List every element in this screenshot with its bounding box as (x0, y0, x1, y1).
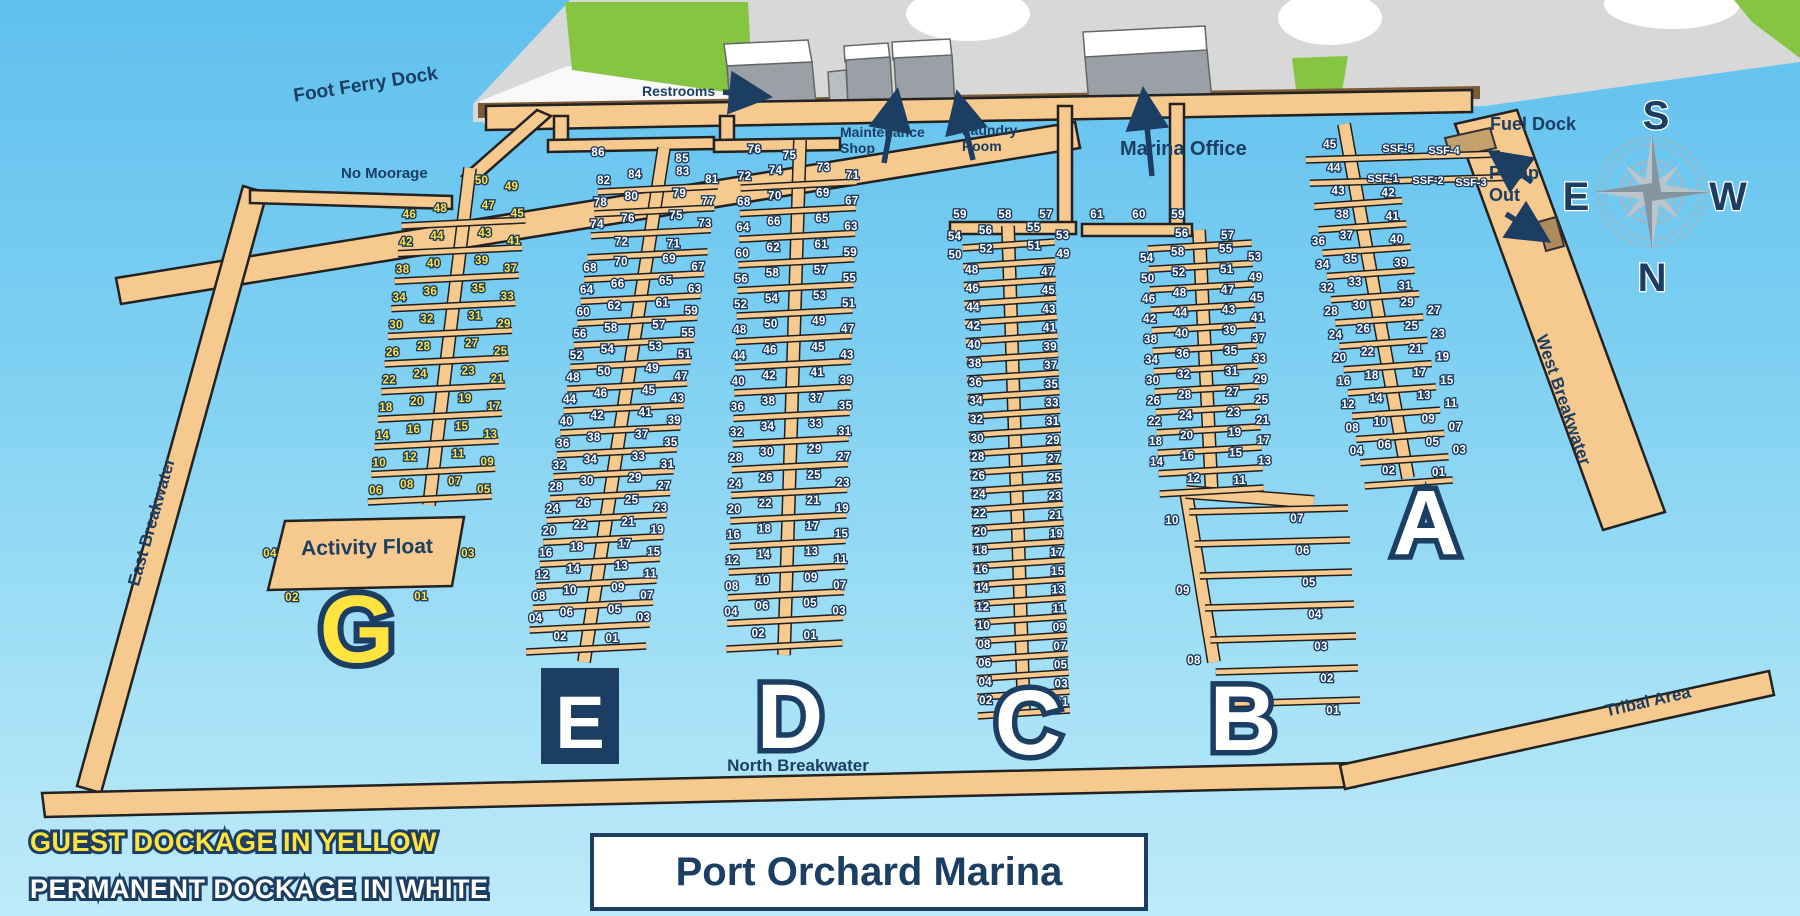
slip-number: 21 (1409, 344, 1423, 356)
dock-structure (553, 471, 673, 477)
dock-letter-a: A (1393, 472, 1459, 574)
slip-number: 71 (667, 239, 681, 251)
slip-number: 35 (839, 401, 853, 413)
slip-number: 21 (1256, 415, 1270, 427)
slip-number: 86 (591, 147, 604, 159)
slip-number: 48 (733, 325, 747, 337)
slip-number: 17 (806, 521, 819, 533)
slip-number: 05 (1426, 437, 1440, 449)
slip-number: 11 (1233, 475, 1246, 487)
dock-structure (381, 386, 505, 392)
slip-number: 19 (836, 503, 849, 515)
slip-number: 05 (477, 484, 491, 496)
slip-number: 21 (807, 495, 821, 507)
slip-number: 14 (975, 583, 989, 595)
slip-number: 04 (1308, 609, 1322, 621)
maintenance-shop-label: Maintenance Shop (840, 124, 940, 156)
dock-structure (737, 310, 853, 316)
slip-number: 13 (1051, 585, 1064, 597)
slip-number: 24 (546, 504, 560, 516)
slip-number: 38 (762, 396, 776, 408)
slip-number: 41 (639, 407, 653, 419)
no-moorage-dock (250, 190, 452, 209)
slip-number: 32 (970, 414, 983, 426)
slip-number: 44 (1174, 308, 1188, 320)
no-moorage-label: No Moorage (341, 165, 428, 182)
compass-north: N (1638, 256, 1667, 300)
slip-number: 05 (608, 604, 622, 616)
slip-number: 44 (1327, 162, 1341, 174)
slip-number: 37 (1252, 333, 1265, 345)
slip-number: 51 (678, 349, 692, 361)
slip-number: 34 (1145, 355, 1159, 367)
dock-structure (577, 317, 697, 323)
slip-number: 60 (1132, 209, 1145, 221)
slip-number: 61 (656, 297, 670, 309)
dock-structure (1155, 386, 1259, 392)
slip-number: 47 (674, 371, 687, 383)
slip-number: 65 (659, 276, 673, 288)
slip-number: 25 (494, 346, 508, 358)
slip-number: SSF-4 (1428, 145, 1460, 157)
slip-number: 49 (1249, 272, 1262, 284)
slip-number: 28 (729, 453, 743, 465)
slip-number: 06 (1378, 440, 1391, 452)
slip-number: 49 (645, 363, 658, 375)
slip-number: 02 (752, 628, 765, 640)
slip-number: 03 (1314, 641, 1327, 653)
slip-number: 23 (654, 503, 667, 515)
dock-structure (740, 208, 856, 214)
slip-number: 28 (971, 452, 985, 464)
slip-number: 76 (621, 213, 634, 225)
slip-number: 24 (728, 478, 742, 490)
slip-number: 07 (1290, 513, 1303, 525)
slip-number: 21 (1049, 510, 1063, 522)
marina-map: SSF-5SSF-4SSF-1SSF-2SSF-3040302015049464… (0, 0, 1800, 916)
slip-number: 12 (1341, 399, 1354, 411)
slip-number: 40 (1175, 328, 1188, 340)
dock-structure (540, 558, 660, 564)
slip-number: 18 (570, 541, 584, 553)
compass-south: S (1643, 94, 1670, 138)
slip-number: 10 (756, 575, 769, 587)
slip-number: 48 (566, 372, 580, 384)
slip-number: 12 (726, 555, 739, 567)
slip-number: 53 (813, 290, 826, 302)
restrooms-building (724, 40, 816, 107)
slip-number: 19 (458, 393, 471, 405)
slip-number: 07 (833, 580, 846, 592)
dock-structure (1152, 325, 1256, 331)
slip-number: 33 (501, 291, 514, 303)
slip-number: 04 (1350, 446, 1364, 458)
slip-number: 23 (1227, 407, 1240, 419)
dock-structure (727, 617, 843, 623)
slip-number: 02 (979, 695, 992, 707)
legend-guest: GUEST DOCKAGE IN YELLOW (30, 827, 437, 857)
slip-number: SSF-2 (1412, 175, 1443, 187)
slip-number: 52 (1172, 267, 1185, 279)
slip-number: 13 (805, 546, 818, 558)
slip-number: 69 (662, 254, 675, 266)
restrooms-label: Restrooms (642, 83, 715, 99)
slip-number: 57 (652, 319, 665, 331)
slip-number: 31 (1046, 416, 1060, 428)
dock-structure (560, 427, 680, 433)
slip-number: 29 (808, 444, 821, 456)
dock-structure (1323, 247, 1411, 253)
slip-number: 26 (386, 347, 399, 359)
slip-number: 25 (1255, 394, 1269, 406)
north-breakwater-label: North Breakwater (727, 756, 869, 776)
slip-number: 29 (628, 473, 641, 485)
slip-number: 46 (1142, 293, 1155, 305)
dock-letter-b: B (1210, 668, 1276, 770)
dock-structure (533, 602, 653, 608)
dock-letter-c: C (995, 672, 1061, 774)
slip-number: 24 (972, 489, 986, 501)
slip-number: 37 (1044, 360, 1057, 372)
slip-number: 45 (642, 385, 656, 397)
slip-number: 56 (573, 328, 586, 340)
slip-number: 07 (1053, 641, 1066, 653)
slip-number: 02 (285, 592, 298, 604)
slip-number: 09 (1053, 622, 1066, 634)
dock-structure (385, 358, 509, 364)
slip-number: 08 (977, 639, 991, 651)
slip-number: 15 (1229, 448, 1243, 460)
grass (1292, 56, 1348, 92)
slip-number: 83 (676, 166, 689, 178)
dock-letter-d: D (757, 666, 823, 768)
laundry-room-building (892, 39, 955, 106)
slip-number: 22 (574, 519, 587, 531)
slip-number: 64 (736, 222, 750, 234)
slip-number: 06 (369, 485, 382, 497)
dock-structure (733, 413, 849, 419)
slip-number: 28 (417, 341, 431, 353)
slip-number: 12 (976, 601, 989, 613)
slip-number: 34 (584, 454, 598, 466)
slip-number: 53 (1248, 251, 1261, 263)
dock-structure (730, 515, 846, 521)
dock-structure (388, 330, 512, 336)
slip-number: 23 (1048, 491, 1061, 503)
slip-number: 17 (1050, 547, 1063, 559)
dock-structure (1157, 427, 1261, 433)
dock-structure (1150, 284, 1254, 290)
slip-number: 06 (755, 600, 768, 612)
slip-number: 05 (1054, 660, 1068, 672)
slip-number: 32 (730, 427, 743, 439)
slip-number: 20 (410, 396, 423, 408)
slip-number: 36 (1312, 236, 1325, 248)
slip-number: 41 (1043, 323, 1057, 335)
slip-number: 09 (611, 582, 624, 594)
dock-structure (395, 275, 519, 281)
slip-number: 32 (553, 460, 566, 472)
slip-number: 35 (1045, 379, 1059, 391)
slip-number: 26 (1357, 323, 1370, 335)
slip-number: 54 (948, 231, 962, 243)
dock-structure (567, 383, 687, 389)
slip-number: 30 (580, 476, 593, 488)
slip-number: 36 (731, 402, 744, 414)
slip-number: 22 (1148, 416, 1161, 428)
slip-number: 27 (1047, 454, 1060, 466)
slip-number: 32 (1177, 369, 1190, 381)
slip-number: 35 (1224, 346, 1238, 358)
slip-number: 52 (570, 350, 583, 362)
compass-west: W (1709, 175, 1747, 219)
slip-number: 84 (628, 169, 642, 181)
slip-number: 18 (1149, 436, 1163, 448)
slip-number: 31 (1225, 366, 1239, 378)
slip-number: 10 (1165, 515, 1178, 527)
slip-number: 25 (625, 495, 639, 507)
slip-number: 02 (553, 631, 566, 643)
slip-number: 34 (1316, 259, 1330, 271)
slip-number: 60 (736, 248, 749, 260)
slip-number: 72 (738, 171, 751, 183)
dock-structure (1151, 304, 1255, 310)
slip-number: 18 (974, 545, 988, 557)
slip-number: 29 (497, 318, 510, 330)
slip-number: 33 (1045, 397, 1058, 409)
slip-number: 47 (841, 324, 854, 336)
dock-structure (1158, 447, 1262, 453)
slip-number: 45 (511, 208, 525, 220)
slip-number: 14 (1150, 457, 1164, 469)
dock-structure (584, 274, 704, 280)
slip-number: 55 (843, 272, 857, 284)
slip-number: 77 (702, 196, 715, 208)
slip-number: 70 (768, 191, 781, 203)
slip-number: 27 (1226, 386, 1239, 398)
slip-number: 49 (1056, 249, 1069, 261)
slip-number: 46 (403, 209, 416, 221)
dock-structure (739, 233, 855, 239)
slip-number: 04 (979, 676, 993, 688)
dock-letter-e: E (555, 681, 604, 764)
dock-structure (591, 230, 711, 236)
slip-number: 42 (399, 237, 412, 249)
slip-number: 01 (414, 591, 428, 603)
slip-number: 45 (1323, 139, 1337, 151)
slip-number: 10 (373, 457, 386, 469)
compass-rose: S E W N (1563, 94, 1747, 300)
dock-structure (1153, 345, 1257, 351)
slip-number: 28 (1325, 306, 1339, 318)
slip-number: 24 (414, 369, 428, 381)
slip-number: 18 (379, 402, 393, 414)
slip-number: 34 (393, 292, 407, 304)
slip-number: 43 (1332, 186, 1345, 198)
slip-number: 50 (764, 319, 777, 331)
slip-number: 04 (263, 548, 277, 560)
slip-number: 16 (727, 530, 740, 542)
slip-number: 03 (461, 548, 474, 560)
slip-number: 50 (475, 175, 488, 187)
slip-number: 19 (1436, 352, 1449, 364)
slip-number: 13 (1417, 390, 1430, 402)
dock-structure (732, 464, 848, 470)
slip-number: 51 (1027, 241, 1041, 253)
slip-number: 58 (998, 209, 1012, 221)
slip-number: 41 (507, 236, 521, 248)
dock-structure (736, 336, 852, 342)
slip-number: 82 (597, 175, 610, 187)
slip-number: 44 (563, 394, 577, 406)
slip-number: 63 (688, 284, 701, 296)
slip-number: 06 (978, 658, 991, 670)
pump-out-label: Pump Out (1489, 163, 1553, 206)
slip-number: 16 (1181, 451, 1194, 463)
slip-number: 44 (732, 350, 746, 362)
slip-number: 15 (647, 546, 661, 558)
slip-number: 21 (491, 374, 505, 386)
slip-number: 19 (651, 524, 664, 536)
slip-number: 27 (657, 481, 670, 493)
slip-number: 13 (1258, 456, 1271, 468)
slip-number: 21 (622, 516, 636, 528)
slip-number: 73 (817, 162, 830, 174)
slip-number: 37 (504, 263, 517, 275)
slip-number: 20 (1333, 353, 1346, 365)
slip-number: 28 (1178, 389, 1192, 401)
slip-number: 60 (577, 306, 590, 318)
slip-number: 14 (1369, 393, 1383, 405)
slip-number: 31 (468, 310, 482, 322)
slip-number: 48 (1173, 287, 1187, 299)
slip-number: 22 (759, 498, 772, 510)
dock-structure (526, 646, 646, 652)
slip-number: 65 (815, 213, 829, 225)
slip-number: 46 (763, 344, 776, 356)
slip-number: 57 (814, 264, 827, 276)
slip-number: 45 (811, 341, 825, 353)
dock-structure (738, 259, 854, 265)
slip-number: 85 (675, 153, 689, 165)
slip-number: 06 (1296, 545, 1309, 557)
slip-number: 59 (1171, 209, 1184, 221)
slip-number: 20 (974, 527, 987, 539)
slip-number: 61 (1090, 209, 1104, 221)
slip-number: 07 (640, 590, 653, 602)
slip-number: 42 (763, 370, 776, 382)
slip-number: 52 (734, 299, 747, 311)
slip-number: 74 (590, 219, 604, 231)
slip-number: 81 (705, 174, 719, 186)
dock-structure (581, 296, 701, 302)
slip-number: 27 (837, 452, 850, 464)
slip-number: 09 (1422, 413, 1435, 425)
slip-number: 27 (465, 338, 478, 350)
slip-number: 59 (844, 247, 857, 259)
slip-number: SSF-5 (1382, 143, 1413, 155)
slip-number: 38 (1336, 209, 1350, 221)
dock-structure (1159, 468, 1263, 474)
slip-number: 45 (1042, 285, 1056, 297)
dock-structure (1148, 243, 1252, 249)
slip-number: 43 (1042, 304, 1055, 316)
slip-number: 38 (587, 432, 601, 444)
slip-number: 62 (608, 300, 621, 312)
slip-number: 02 (1320, 673, 1333, 685)
slip-number: 67 (691, 262, 704, 274)
slip-number: 33 (1348, 277, 1361, 289)
slip-number: 47 (1041, 266, 1054, 278)
slip-number: 20 (543, 525, 556, 537)
slip-number: 03 (637, 612, 650, 624)
slip-number: 57 (1039, 209, 1052, 221)
slip-number: SSF-3 (1455, 177, 1486, 189)
slip-number: 24 (1329, 329, 1343, 341)
dock-structure (564, 405, 684, 411)
slip-number: 19 (1050, 529, 1063, 541)
slip-number: 26 (577, 498, 590, 510)
slip-number: 28 (549, 482, 563, 494)
dock-structure (368, 496, 492, 502)
dock-structure (570, 361, 690, 367)
slip-number: 03 (832, 605, 845, 617)
tribal-area-dock (1340, 671, 1774, 789)
dock-structure (729, 541, 845, 547)
slip-number: 38 (396, 264, 410, 276)
activity-float-label: Activity Float (301, 535, 433, 561)
slip-number: 53 (1056, 230, 1069, 242)
slip-number: 56 (1175, 228, 1188, 240)
slip-number: 40 (968, 339, 981, 351)
slip-number: 11 (1445, 398, 1458, 410)
slip-number: 32 (420, 313, 433, 325)
slip-number: 54 (1140, 252, 1154, 264)
slip-number: 29 (1401, 297, 1414, 309)
slip-number: 22 (973, 508, 986, 520)
dock-structure (733, 438, 849, 444)
slip-number: 14 (567, 563, 581, 575)
slip-number: 01 (804, 630, 818, 642)
dock-structure (1314, 201, 1402, 207)
slip-number: 37 (1340, 230, 1353, 242)
slip-number: 68 (737, 197, 751, 209)
slip-number: 14 (376, 430, 390, 442)
slip-number: 42 (1382, 188, 1395, 200)
slip-number: 42 (591, 410, 604, 422)
slip-number: 17 (1413, 367, 1426, 379)
slip-number: 70 (614, 257, 627, 269)
slip-number: 11 (644, 568, 657, 580)
dock-structure (371, 468, 495, 474)
map-title: Port Orchard Marina (676, 850, 1063, 895)
fuel-dock-label: Fuel Dock (1490, 114, 1576, 135)
slip-number: 39 (1044, 341, 1057, 353)
slip-number: 75 (783, 150, 797, 162)
slip-number: 46 (594, 388, 607, 400)
slip-number: 17 (487, 401, 500, 413)
slip-number: 41 (811, 367, 825, 379)
slip-number: 04 (529, 613, 543, 625)
slip-number: 40 (732, 376, 745, 388)
slip-number: 03 (1453, 445, 1466, 457)
slip-number: 12 (1187, 473, 1200, 485)
slip-number: 06 (560, 607, 573, 619)
dock-structure (729, 566, 845, 572)
slip-number: 40 (1390, 234, 1403, 246)
slip-number: 55 (681, 327, 695, 339)
slip-number: 32 (1320, 283, 1333, 295)
